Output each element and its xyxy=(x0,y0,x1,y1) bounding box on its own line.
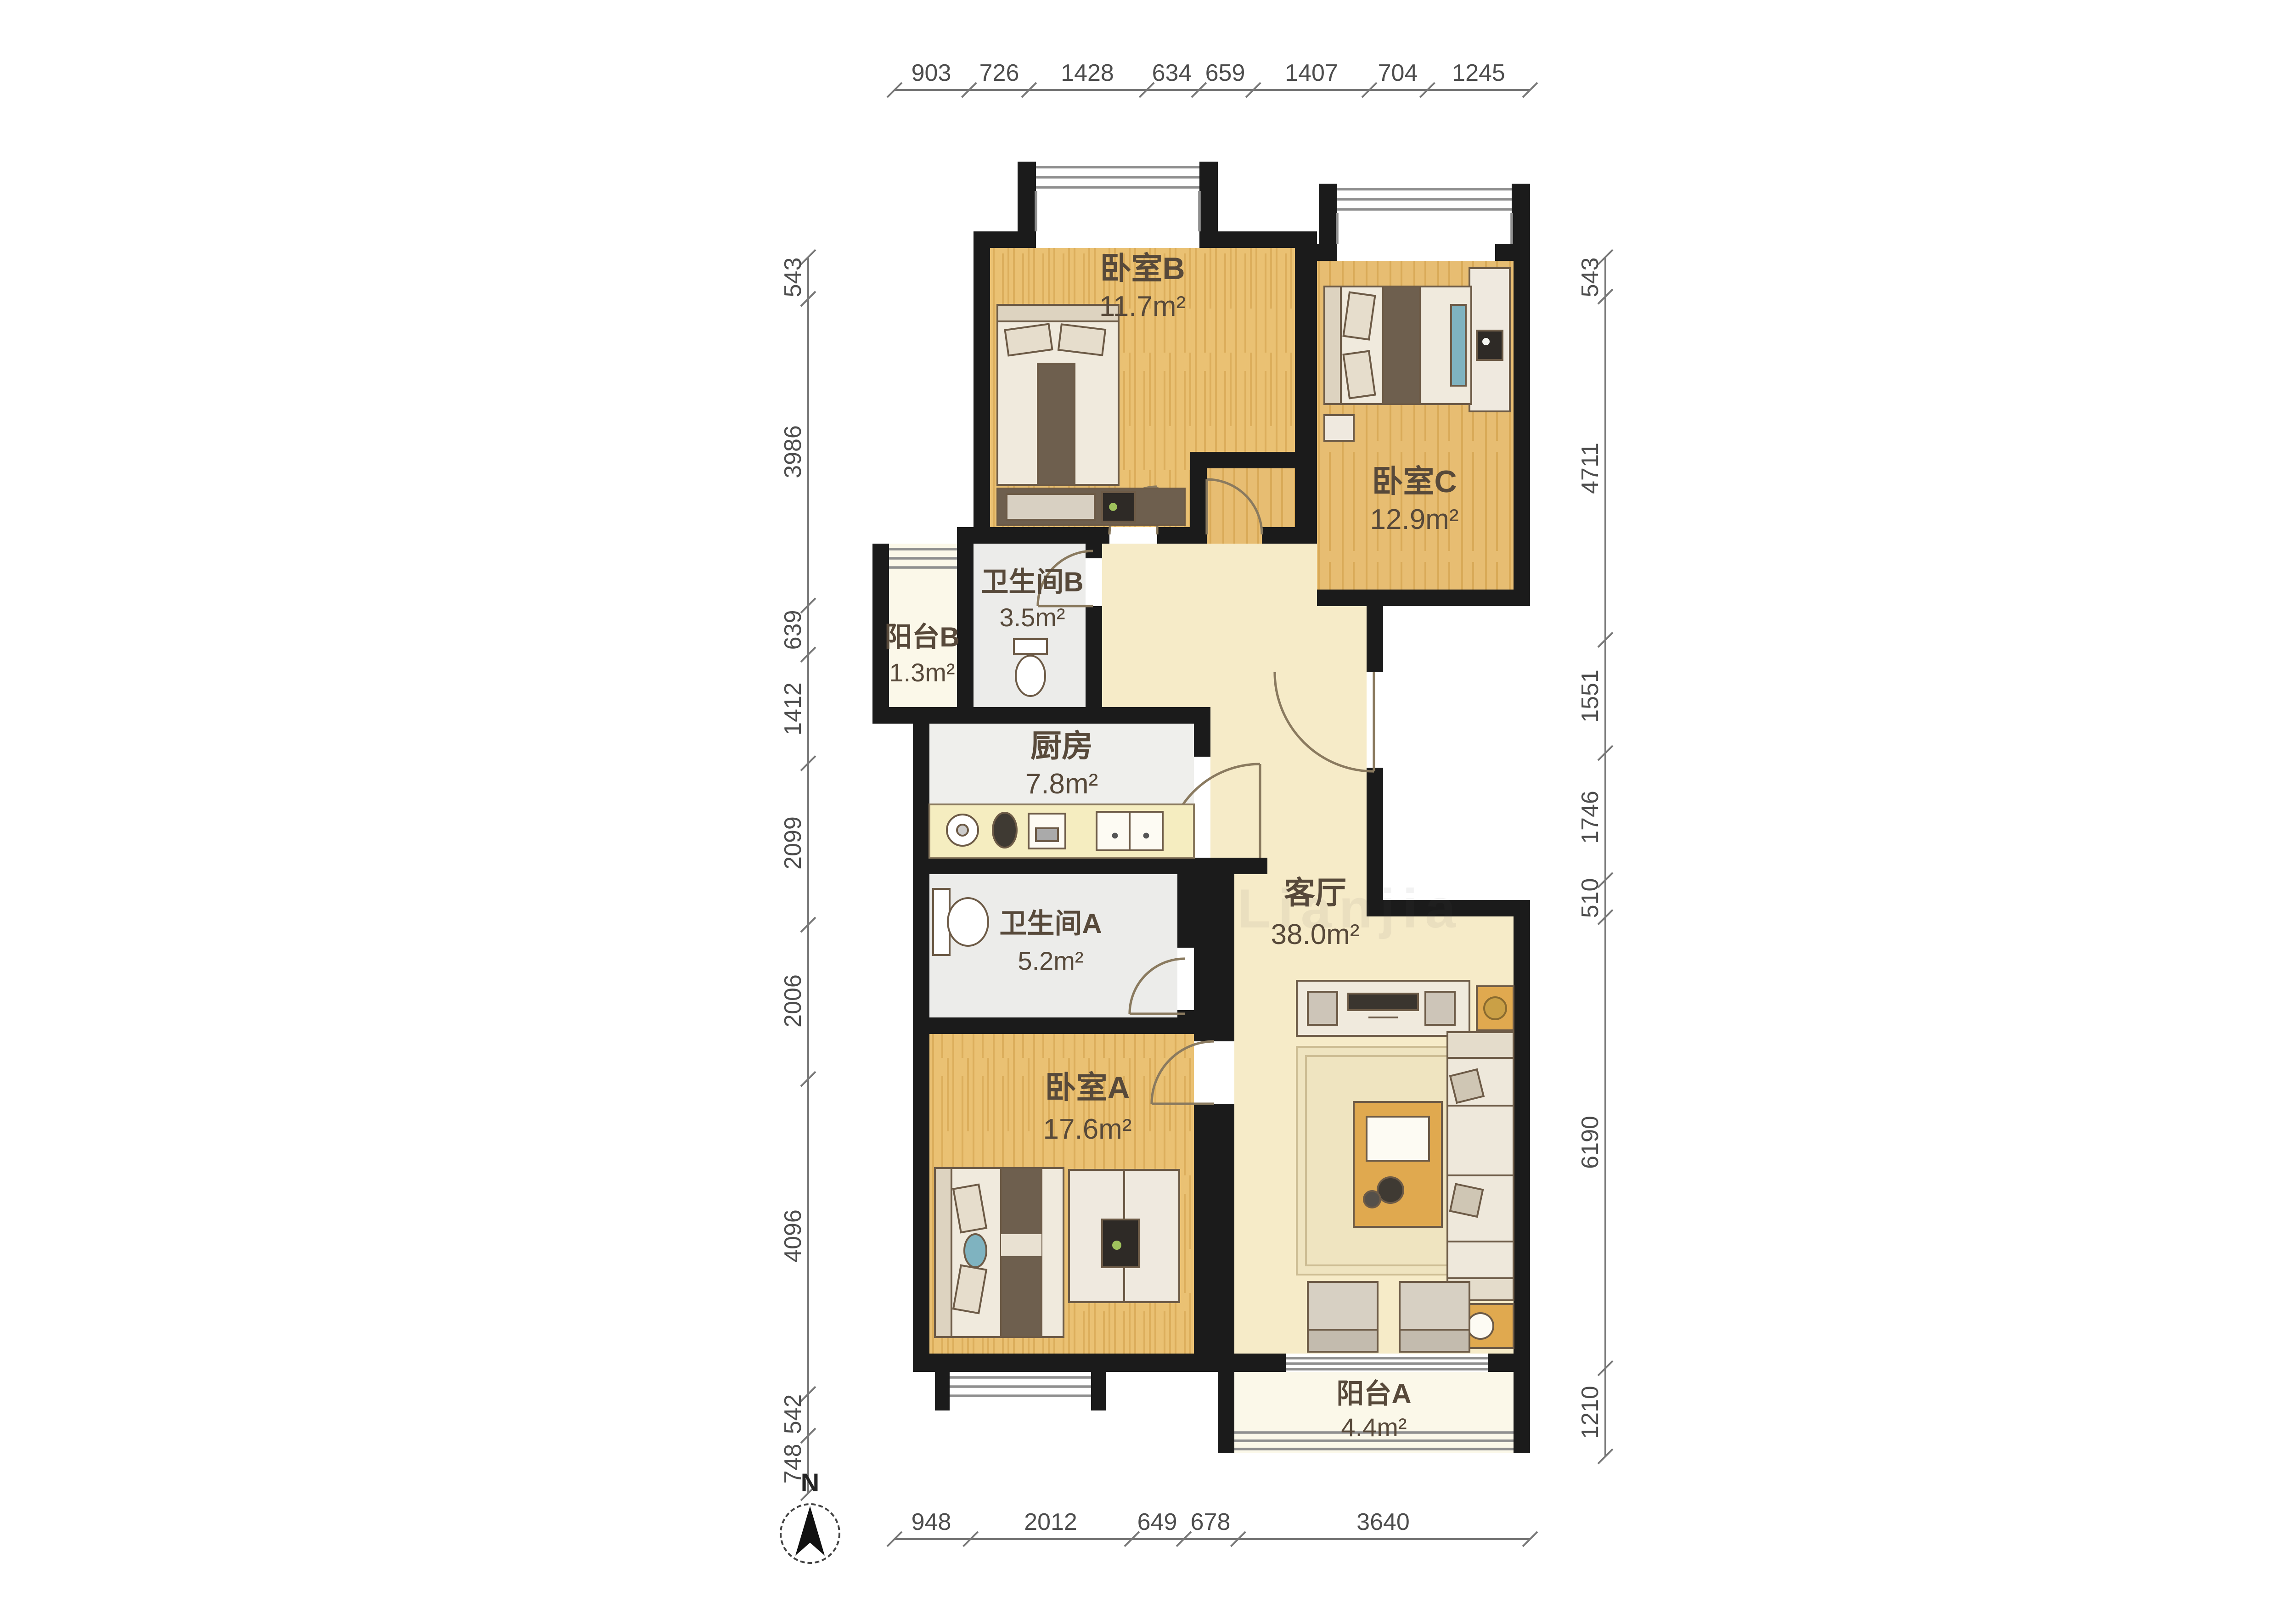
dim-label: 2099 xyxy=(780,816,806,870)
bathroom-a-label: 卫生间A xyxy=(999,908,1102,939)
balcony-a-sliding-door xyxy=(1286,1358,1488,1369)
balcony-b-label: 阳台B xyxy=(884,622,959,652)
bathroom-b-area: 3.5m² xyxy=(999,603,1065,632)
bathroom-b-label: 卫生间B xyxy=(981,567,1083,597)
kitchen-fixtures xyxy=(929,804,1194,858)
dim-label: 704 xyxy=(1378,60,1418,86)
sink-drain-icon xyxy=(957,825,968,836)
stove-pot-icon xyxy=(993,813,1017,848)
dim-label: 543 xyxy=(780,258,806,298)
throw-icon xyxy=(1451,305,1466,386)
dim-label: 3986 xyxy=(780,425,806,478)
dim-label: 639 xyxy=(780,610,806,650)
lamp-icon xyxy=(1468,1313,1493,1339)
bedroom-b-label: 卧室B xyxy=(1100,251,1185,286)
tv-light-icon xyxy=(1109,503,1117,511)
balcony-a-area: 4.4m² xyxy=(1341,1413,1407,1442)
ottoman-band xyxy=(1308,1330,1378,1352)
wardrobe-door-icon xyxy=(1007,494,1095,520)
dim-label: 542 xyxy=(780,1394,806,1434)
sofa xyxy=(1447,1032,1514,1300)
headboard-icon xyxy=(1324,287,1341,404)
nightstand-icon xyxy=(1324,415,1354,441)
dimension-left: 543 3986 639 1412 2099 2006 4096 542 748 xyxy=(780,250,816,1500)
dim-label: 1245 xyxy=(1452,60,1505,86)
toilet-icon xyxy=(948,898,988,946)
sofa-armrest xyxy=(1447,1032,1514,1058)
blanket-icon xyxy=(1038,364,1075,485)
bay-window-bedroom-b xyxy=(1036,167,1199,231)
dim-label: 2006 xyxy=(780,974,806,1028)
dimension-top: 903 726 1428 634 659 1407 704 1245 xyxy=(887,60,1537,97)
dim-label: 6190 xyxy=(1577,1116,1604,1169)
tv-icon xyxy=(1348,994,1418,1010)
tray-icon xyxy=(1367,1117,1429,1161)
teapot-icon xyxy=(1378,1177,1403,1203)
pillow-icon xyxy=(1344,351,1375,399)
drain-icon xyxy=(1112,833,1118,839)
bathroom-b-fixtures xyxy=(1014,639,1047,696)
dim-label: 659 xyxy=(1205,60,1245,86)
tv-icon xyxy=(1477,331,1503,360)
bedroom-c-area: 12.9m² xyxy=(1370,504,1459,535)
kitchen-area: 7.8m² xyxy=(1025,768,1098,800)
dim-label: 903 xyxy=(912,60,951,86)
dim-label: 4096 xyxy=(780,1209,806,1263)
blanket-icon xyxy=(1383,287,1420,404)
living-room-furniture xyxy=(1297,981,1514,1352)
dim-label: 1407 xyxy=(1285,60,1338,86)
compass-north-label: N xyxy=(801,1468,819,1497)
floor-plan-canvas: 卧室B 11.7m² 卧室C 12.9m² 卫生间B 3.5m² 阳台B 1.3… xyxy=(0,0,2296,1607)
tv-icon xyxy=(1102,492,1135,522)
dim-label: 543 xyxy=(1577,258,1604,298)
bathroom-a-area: 5.2m² xyxy=(1018,946,1083,975)
dim-label: 726 xyxy=(979,60,1019,86)
dim-label: 510 xyxy=(1577,878,1604,918)
speaker-icon xyxy=(1425,992,1455,1025)
ottoman-band xyxy=(1400,1330,1469,1352)
compass-needle-icon xyxy=(795,1506,825,1556)
dim-label: 1746 xyxy=(1577,791,1604,844)
dim-label: 678 xyxy=(1191,1509,1231,1535)
dim-label: 1428 xyxy=(1061,60,1114,86)
dim-label: 2012 xyxy=(1024,1509,1077,1535)
pillow-icon xyxy=(1058,324,1105,355)
balcony-b-area: 1.3m² xyxy=(889,658,955,687)
stove-grate-icon xyxy=(1036,828,1058,841)
toilet-icon xyxy=(1016,656,1045,696)
dim-label: 1210 xyxy=(1577,1386,1604,1439)
speaker-icon xyxy=(1308,992,1337,1025)
bedroom-a-window xyxy=(950,1377,1091,1396)
bedroom-a-label: 卧室A xyxy=(1045,1070,1130,1105)
bedroom-a-area: 17.6m² xyxy=(1043,1113,1132,1145)
throw-icon xyxy=(964,1234,986,1267)
pillow-icon xyxy=(1005,324,1052,356)
tv-light-icon xyxy=(1112,1241,1121,1250)
headboard-icon xyxy=(935,1168,951,1337)
dim-label: 649 xyxy=(1137,1509,1177,1535)
dim-label: 1412 xyxy=(780,682,806,736)
decor-icon xyxy=(1484,997,1506,1019)
tv-light-icon xyxy=(1482,338,1490,345)
dim-label: 634 xyxy=(1152,60,1192,86)
bedroom-b-area: 11.7m² xyxy=(1099,291,1186,322)
pillow-icon xyxy=(1344,292,1375,340)
bedroom-c-label: 卧室C xyxy=(1372,464,1457,499)
sofa-pillow-icon xyxy=(1450,1069,1484,1103)
watermark: Lianjia xyxy=(1237,878,1463,939)
sofa-pillow-icon xyxy=(1450,1184,1483,1217)
bay-window-bedroom-c xyxy=(1337,189,1512,244)
dim-label: 3640 xyxy=(1356,1509,1410,1535)
cup-icon xyxy=(1364,1191,1380,1208)
dimension-right: 543 4711 1551 1746 510 6190 1210 xyxy=(1577,250,1613,1464)
balcony-a-label: 阳台A xyxy=(1336,1378,1411,1409)
dimension-bottom: 948 2012 649 678 3640 xyxy=(887,1509,1537,1546)
drain-icon xyxy=(1143,833,1149,839)
dim-label: 948 xyxy=(912,1509,951,1535)
blanket-fold-icon xyxy=(1001,1234,1041,1256)
dim-label: 1551 xyxy=(1577,669,1604,723)
toilet-tank-icon xyxy=(1014,639,1047,654)
dim-label: 4711 xyxy=(1577,443,1604,494)
kitchen-label: 厨房 xyxy=(1030,729,1093,764)
